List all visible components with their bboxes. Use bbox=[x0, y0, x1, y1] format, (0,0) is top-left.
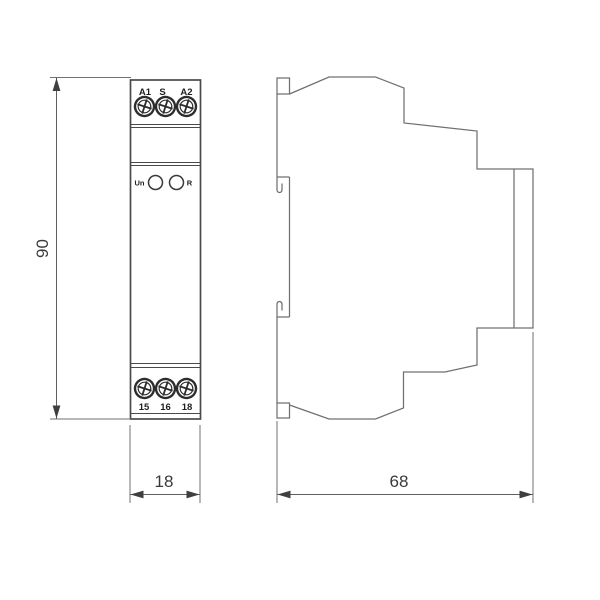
dimension-depth: 68 bbox=[277, 332, 533, 503]
dimension-value-depth: 68 bbox=[390, 472, 409, 491]
dimension-value-height: 90 bbox=[33, 239, 52, 258]
arrow-down-icon bbox=[53, 406, 61, 419]
terminal-label-15: 15 bbox=[139, 402, 150, 413]
side-top-tab bbox=[277, 78, 290, 94]
arrow-right-icon bbox=[187, 491, 200, 499]
dimension-value-width: 18 bbox=[155, 472, 174, 491]
din-module-dimension-drawing: A1 S A2 Un R bbox=[0, 0, 600, 600]
led-indicator-icon bbox=[149, 176, 163, 190]
bottom-terminal-labels: 15 16 18 bbox=[139, 402, 193, 413]
front-view: A1 S A2 Un R bbox=[131, 80, 201, 419]
front-view-body bbox=[131, 80, 201, 419]
side-front-face bbox=[277, 94, 290, 403]
terminal-label-16: 16 bbox=[160, 402, 171, 413]
side-view bbox=[277, 77, 533, 419]
arrow-left-icon bbox=[278, 491, 291, 499]
side-clip-hook bbox=[277, 177, 282, 193]
indicator-label-r: R bbox=[187, 179, 193, 188]
arrow-right-icon bbox=[520, 491, 533, 499]
side-body-outline bbox=[290, 77, 534, 419]
side-bottom-tab bbox=[277, 403, 290, 418]
arrow-left-icon bbox=[131, 491, 144, 499]
terminal-label-18: 18 bbox=[182, 402, 193, 413]
dimension-width: 18 bbox=[130, 425, 200, 503]
side-clip-hook bbox=[277, 302, 282, 318]
indicator-label-un: Un bbox=[135, 179, 145, 188]
dimension-height: 90 bbox=[33, 78, 131, 420]
arrow-up-icon bbox=[53, 78, 61, 91]
dimensional-drawing-page: A1 S A2 Un R bbox=[0, 0, 600, 600]
led-indicator-icon bbox=[170, 176, 184, 190]
